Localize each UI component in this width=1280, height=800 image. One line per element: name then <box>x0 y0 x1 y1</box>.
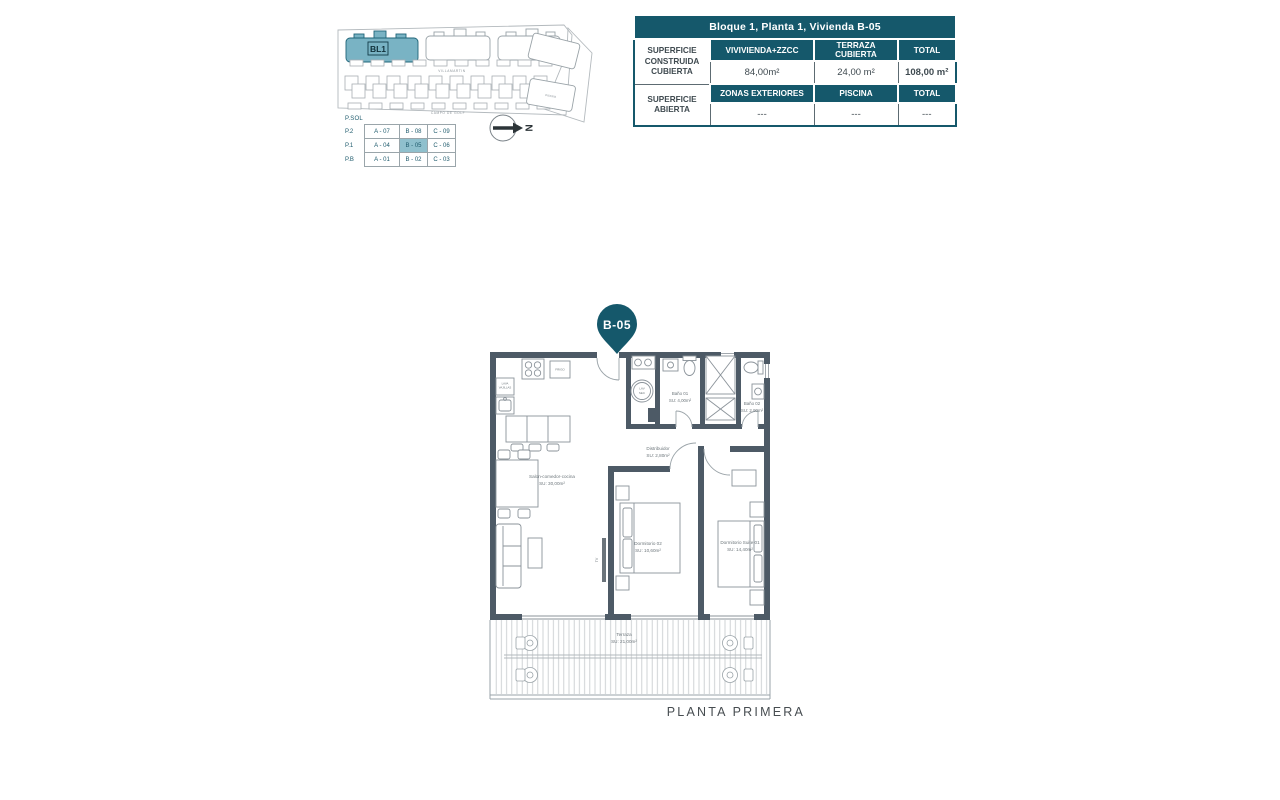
bath1-sink <box>663 359 678 371</box>
level-row-pb: P.B A - 01 B - 02 C - 03 <box>344 153 456 167</box>
unit-cell: C - 03 <box>428 153 456 167</box>
salon-label: Salon-comedor-cocina <box>529 474 575 479</box>
bath1-toilet <box>684 361 695 376</box>
north-letter: N <box>522 124 533 131</box>
terraza-area: SU: 21,00m² <box>611 639 637 644</box>
dining-chair <box>498 509 510 518</box>
bath2-toilet-tank <box>758 361 763 374</box>
value-total-construida: 108,00 m² <box>898 61 956 84</box>
coffee-table <box>528 538 542 568</box>
suite-area: SU: 14,40m² <box>727 547 753 552</box>
terraza-label: Terraza <box>616 632 632 637</box>
level-row-p2: P.2 A - 07 B - 08 C - 09 <box>344 125 456 139</box>
pillow <box>623 539 632 568</box>
col-head: TOTAL <box>898 39 956 61</box>
bano1-area: SU: 4,00m² <box>669 398 692 403</box>
sofa <box>496 524 521 588</box>
bano2-label: Baño 02 <box>744 401 761 406</box>
plan-caption: PLANTA PRIMERA <box>667 705 805 719</box>
bath1-toilet-tank <box>683 356 696 361</box>
bano2-area: SU: 2,90m² <box>741 408 764 413</box>
nightstand <box>750 590 764 605</box>
fridge-label: FRIGO <box>555 368 565 372</box>
stool <box>529 444 541 451</box>
bath2-sink <box>752 384 764 399</box>
dining-chair <box>518 450 530 459</box>
pillow <box>623 508 632 537</box>
col-head: VIVIVIENDA+ZZCC <box>710 39 814 61</box>
pillow <box>754 525 762 552</box>
col-head: ZONAS EXTERIORES <box>710 84 814 103</box>
unit-cell: A - 01 <box>365 153 400 167</box>
levels-table: P.SOL P.2 A - 07 B - 08 C - 09 P.1 A - 0… <box>344 116 456 167</box>
dining-set <box>496 450 538 518</box>
value-total-abierta: --- <box>898 103 956 126</box>
unit-cell: C - 09 <box>428 125 456 139</box>
garage-row-2 <box>348 103 550 109</box>
stove <box>522 359 544 379</box>
street-label-bottom: CAMPO DE GOLF <box>431 111 465 115</box>
site-plan: BL1 VILLAMARTIN <box>330 12 595 130</box>
row-label-abierta: SUPERFICIE ABIERTA <box>634 84 710 126</box>
distribuidor-area: SU: 2,80m² <box>646 453 670 458</box>
tv-label: TV <box>595 557 599 562</box>
nightstand <box>616 486 629 500</box>
col-head: TOTAL <box>898 84 956 103</box>
site-buildings-right <box>526 33 580 112</box>
washer-label-2: SEC <box>639 391 646 395</box>
bath1-fixtures <box>663 356 696 376</box>
bath2-toilet <box>744 362 758 373</box>
washer-label-1: LAV <box>639 387 644 391</box>
townhouse-row <box>345 76 554 98</box>
dining-chair <box>518 509 530 518</box>
bl1-label: BL1 <box>370 44 386 54</box>
north-arrow-icon: N <box>484 110 536 148</box>
bed-suite <box>718 470 764 605</box>
kitchen-island <box>506 416 570 451</box>
building-2 <box>426 29 490 60</box>
nightstand <box>616 576 629 590</box>
value-piscina: --- <box>814 103 898 126</box>
location-pin-icon: B-05 <box>597 304 637 354</box>
value-terraza: 24,00 m² <box>814 61 898 84</box>
row-label-construida: SUPERFICIE CONSTRUIDA CUBIERTA <box>634 39 710 84</box>
nightstand <box>750 502 764 517</box>
level-label: P.2 <box>344 125 365 139</box>
dining-table <box>496 460 538 507</box>
stool <box>547 444 559 451</box>
unit-cell: A - 07 <box>365 125 400 139</box>
summary-title: Bloque 1, Planta 1, Vivienda B-05 <box>634 15 956 39</box>
level-row-p1: P.1 A - 04 B - 05 C - 06 <box>344 139 456 153</box>
value-zonas-ext: --- <box>710 103 814 126</box>
unit-cell: C - 06 <box>428 139 456 153</box>
unit-cell-highlighted: B - 05 <box>400 139 428 153</box>
col-head: TERRAZA CUBIERTA <box>814 39 898 61</box>
desk <box>732 470 756 486</box>
dishwasher-label-2: VAJILLAS <box>499 386 512 390</box>
suite-label: Dormitorio Suite 01 <box>720 540 760 545</box>
level-label: P.B <box>344 153 365 167</box>
dorm2-label: Dormitorio 02 <box>634 541 662 546</box>
bed-dorm2 <box>616 486 680 590</box>
col-head: PISCINA <box>814 84 898 103</box>
street-label-top: VILLAMARTIN <box>438 69 466 73</box>
pillow <box>754 555 762 582</box>
terrace-glazing <box>522 616 754 619</box>
floor-plan: Salon-comedor-cocina SU: 30,00m² Distrib… <box>478 298 808 723</box>
bano1-label: Baño 01 <box>672 391 689 396</box>
value-vivienda: 84,00m² <box>710 61 814 84</box>
levels-corner-label: P.SOL <box>344 116 456 122</box>
unit-cell: A - 04 <box>365 139 400 153</box>
garage-row-1 <box>350 60 552 66</box>
dining-chair <box>498 450 510 459</box>
wardrobes <box>706 356 735 420</box>
levels-grid: P.2 A - 07 B - 08 C - 09 P.1 A - 04 B - … <box>344 124 456 167</box>
brochure-page: BL1 VILLAMARTIN <box>0 0 1280 800</box>
pin-unit-label: B-05 <box>603 318 631 332</box>
salon-area: SU: 30,00m² <box>539 481 565 486</box>
unit-cell: B - 08 <box>400 125 428 139</box>
unit-cell: B - 02 <box>400 153 428 167</box>
bath2-fixtures <box>744 361 764 399</box>
dorm2-area: SU: 10,60m² <box>635 548 661 553</box>
level-label: P.1 <box>344 139 365 153</box>
summary-table: Bloque 1, Planta 1, Vivienda B-05 SUPERF… <box>633 14 957 127</box>
distribuidor-label: Distribuidor <box>646 446 670 451</box>
tv <box>602 538 606 582</box>
